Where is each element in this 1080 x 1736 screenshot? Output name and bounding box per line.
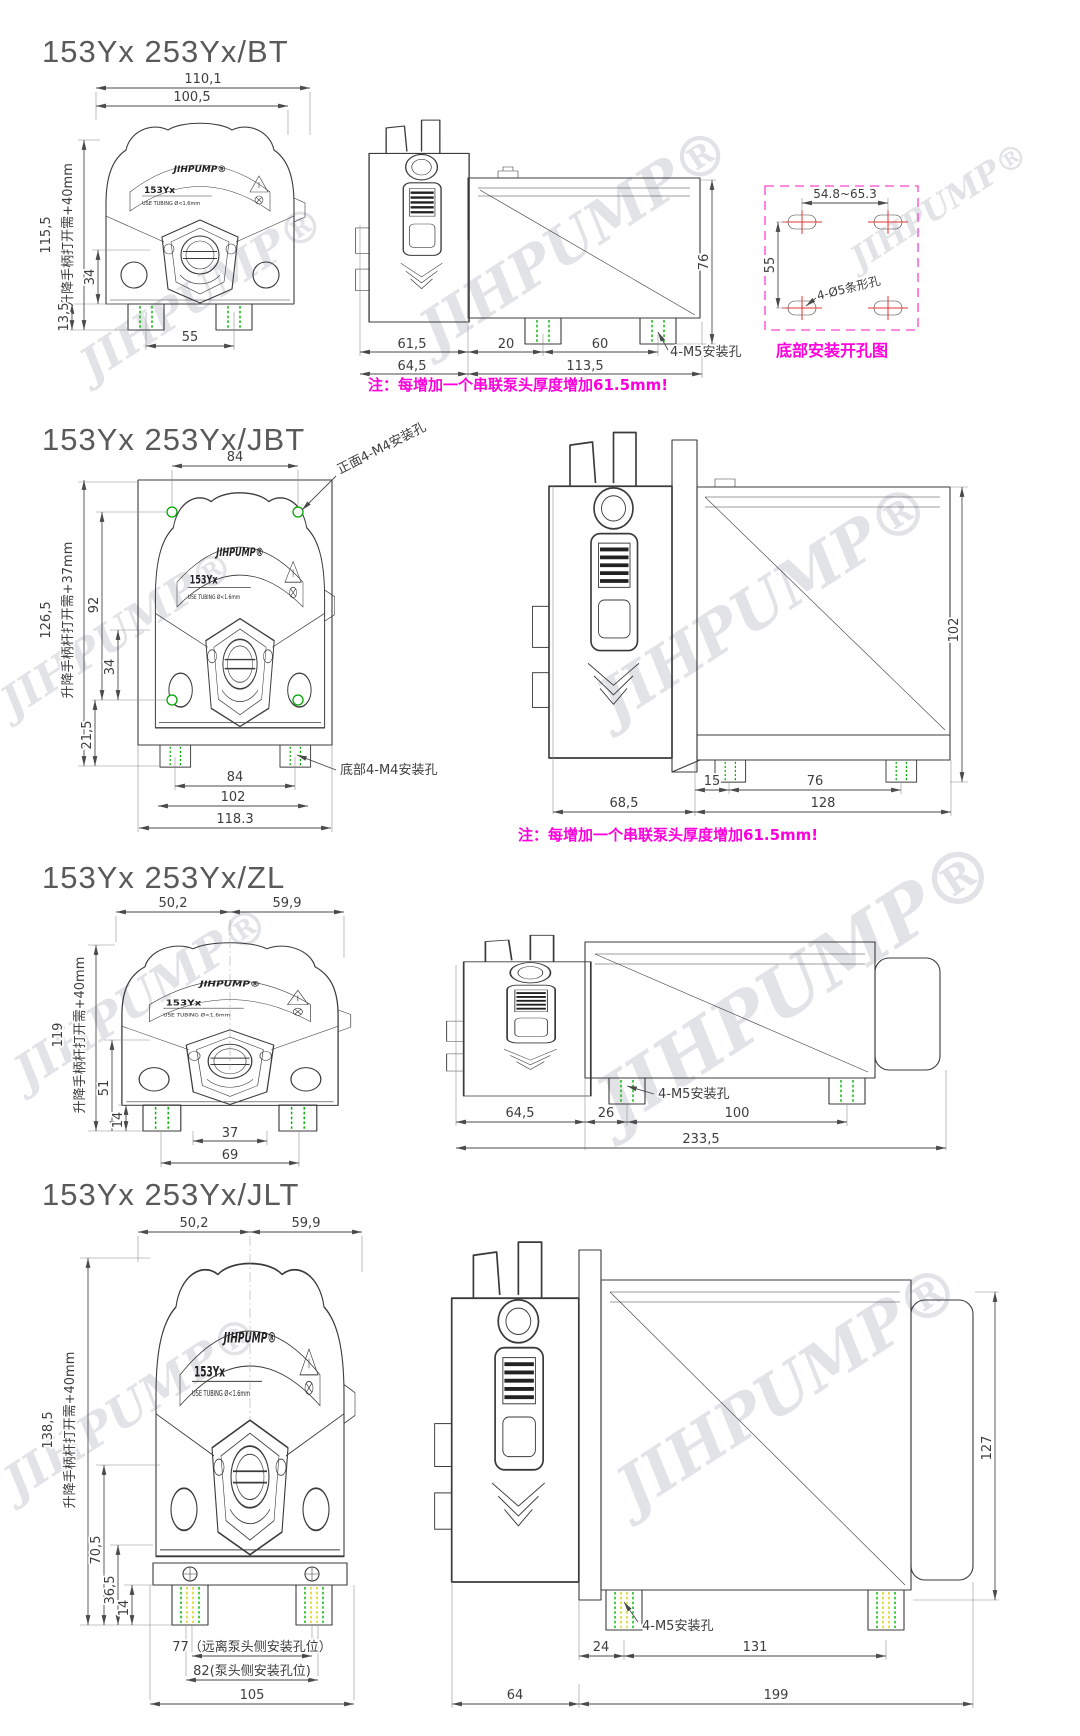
bottom-hole-label: 底部4-M4安装孔	[340, 762, 437, 778]
dim-width: 118.3	[216, 812, 253, 827]
section-title: 153Yx 253Yx/JBT	[42, 422, 305, 457]
dim-height: 102	[947, 618, 962, 643]
dim-head-depth: 64,5	[506, 1106, 535, 1121]
dim-hole-span-v: 92	[87, 597, 102, 614]
mount-hole-label: 4-M5安装孔	[670, 345, 741, 360]
dim-row-span: 55	[763, 257, 778, 274]
watermarks: JIHPUMP® JIHPUMP® JIHPUMP® JIHPUMP® JIHP…	[0, 114, 1035, 1530]
dim-width-left: 50,2	[180, 1216, 209, 1231]
slot-hole-label: 4-Ø5条形孔	[815, 274, 882, 303]
dim-plate-to-foot: 24	[593, 1640, 610, 1655]
dim-base-to-foot: 13,5	[57, 303, 72, 332]
dim-base-height: 36,5	[103, 1576, 118, 1605]
dim-foot-height: 14	[111, 1112, 126, 1129]
front-hole-label: 正面4-M4安装孔	[335, 420, 429, 478]
dim-height-note: 升降手柄打开需+40mm	[61, 163, 76, 307]
dim-width-inner: 100,5	[173, 90, 210, 105]
base-plate	[697, 735, 950, 760]
back-plate	[579, 1250, 601, 1600]
dim-knob-to-foot: 70,5	[89, 1536, 104, 1565]
mount-hole-label: 4-M5安装孔	[658, 1087, 729, 1102]
base-screw	[183, 1567, 197, 1581]
series-note: 注：每增加一个串联泵头厚度增加61.5mm!	[368, 376, 668, 394]
dim-foot-height: 14	[117, 1600, 132, 1617]
watermark-text: JIHPUMP®	[838, 134, 1035, 280]
dim-head-depth: 61,5	[398, 337, 427, 352]
dim-height-note: 升降手柄杆打开需+40mm	[73, 957, 88, 1114]
watermark-text: JIHPUMP®	[576, 470, 943, 742]
front-m4-hole	[293, 507, 303, 517]
dim-width: 105	[240, 1688, 265, 1703]
watermark-text: JIHPUMP®	[594, 1249, 973, 1531]
watermark-text: JIHPUMP®	[400, 114, 743, 369]
dim-foot-span: 60	[592, 337, 609, 352]
dim-width-outer: 110,1	[184, 72, 221, 87]
dim-plate-to-foot: 15	[704, 774, 721, 789]
dim-height: 119	[51, 1023, 66, 1048]
dim-head-depth: 68,5	[610, 796, 639, 811]
dim-head-to-foot: 26	[598, 1106, 615, 1121]
section-jbt: 153Yx 253Yx/JBT 84 正面4-M4安装孔 126,5 升降手柄杆…	[39, 420, 968, 844]
dim-height-note: 升降手柄杆打开需+40mm	[63, 1352, 78, 1509]
base-screw	[305, 1567, 319, 1581]
section-jlt: 153Yx 253Yx/JLT 50,2 59,9 138,5 升降手柄杆打开需…	[41, 1177, 999, 1708]
front-m4-hole	[167, 695, 177, 705]
dim-height: 115,5	[39, 216, 54, 253]
drawing-canvas: JIHPUMP® 153Yx USE TUBING Ø<1.6mm	[0, 0, 1080, 1736]
hole-diagram-caption: 底部安装开孔图	[776, 341, 888, 360]
dim-body-depth: 199	[764, 1688, 789, 1703]
dim-head-depth: 64	[507, 1688, 524, 1703]
dim-foot-span: 100	[725, 1106, 750, 1121]
watermark-text: JIHPUMP®	[0, 539, 243, 730]
dim-height: 76	[697, 254, 712, 271]
dim-plate-width: 102	[221, 790, 246, 805]
dim-knob-to-base: 34	[83, 269, 98, 286]
dim-hole-to-foot: 21,5	[80, 721, 95, 750]
dim-depth-body: 113,5	[566, 359, 603, 374]
section-title: 153Yx 253Yx/BT	[42, 34, 289, 69]
dim-height: 127	[980, 1436, 995, 1461]
series-note: 注：每增加一个串联泵头厚度增加61.5mm!	[518, 826, 818, 844]
dim-height: 138,5	[41, 1411, 56, 1448]
dim-foot-span-far: 77（远离泵头侧安装孔位）	[172, 1639, 332, 1655]
dim-head-to-foot: 20	[498, 337, 515, 352]
back-plate	[672, 440, 697, 772]
dim-knob-to-hole: 34	[103, 659, 118, 676]
dim-slot-span: 37	[222, 1126, 239, 1141]
dim-depth-head: 64,5	[398, 359, 427, 374]
dim-foot-span: 69	[222, 1148, 239, 1163]
dim-slot-span: 54.8~65.3	[813, 187, 877, 201]
dim-body-depth: 128	[811, 796, 836, 811]
watermark-text: JIHPUMP®	[65, 195, 334, 394]
dim-width-right: 59,9	[273, 896, 302, 911]
dim-height-note: 升降手柄杆打开需+37mm	[61, 542, 76, 699]
technical-drawing-page: JIHPUMP® 153Yx USE TUBING Ø<1.6mm	[0, 0, 1080, 1736]
dim-width-left: 50,2	[159, 896, 188, 911]
dim-foot-span: 76	[807, 774, 824, 789]
dim-foot-span: 131	[743, 1640, 768, 1655]
section-title: 153Yx 253Yx/JLT	[42, 1177, 299, 1212]
dim-width-right: 59,9	[292, 1216, 321, 1231]
dim-knob-to-foot: 51	[97, 1080, 112, 1097]
mount-hole-label: 4-M5安装孔	[642, 1619, 713, 1634]
dim-foot-span-near: 82(泵头侧安装孔位)	[193, 1664, 311, 1679]
dim-foot-span: 55	[182, 330, 199, 345]
dim-foot-span: 84	[227, 770, 244, 785]
front-m4-hole	[167, 507, 177, 517]
dim-hole-span-top: 84	[227, 450, 244, 465]
section-title: 153Yx 253Yx/ZL	[42, 860, 285, 895]
watermark-text: JIHPUMP®	[571, 823, 1012, 1151]
watermark-text: JIHPUMP®	[0, 894, 279, 1103]
dim-height: 126,5	[39, 601, 54, 638]
front-m4-hole	[293, 695, 303, 705]
dim-total-depth: 233,5	[682, 1132, 719, 1147]
